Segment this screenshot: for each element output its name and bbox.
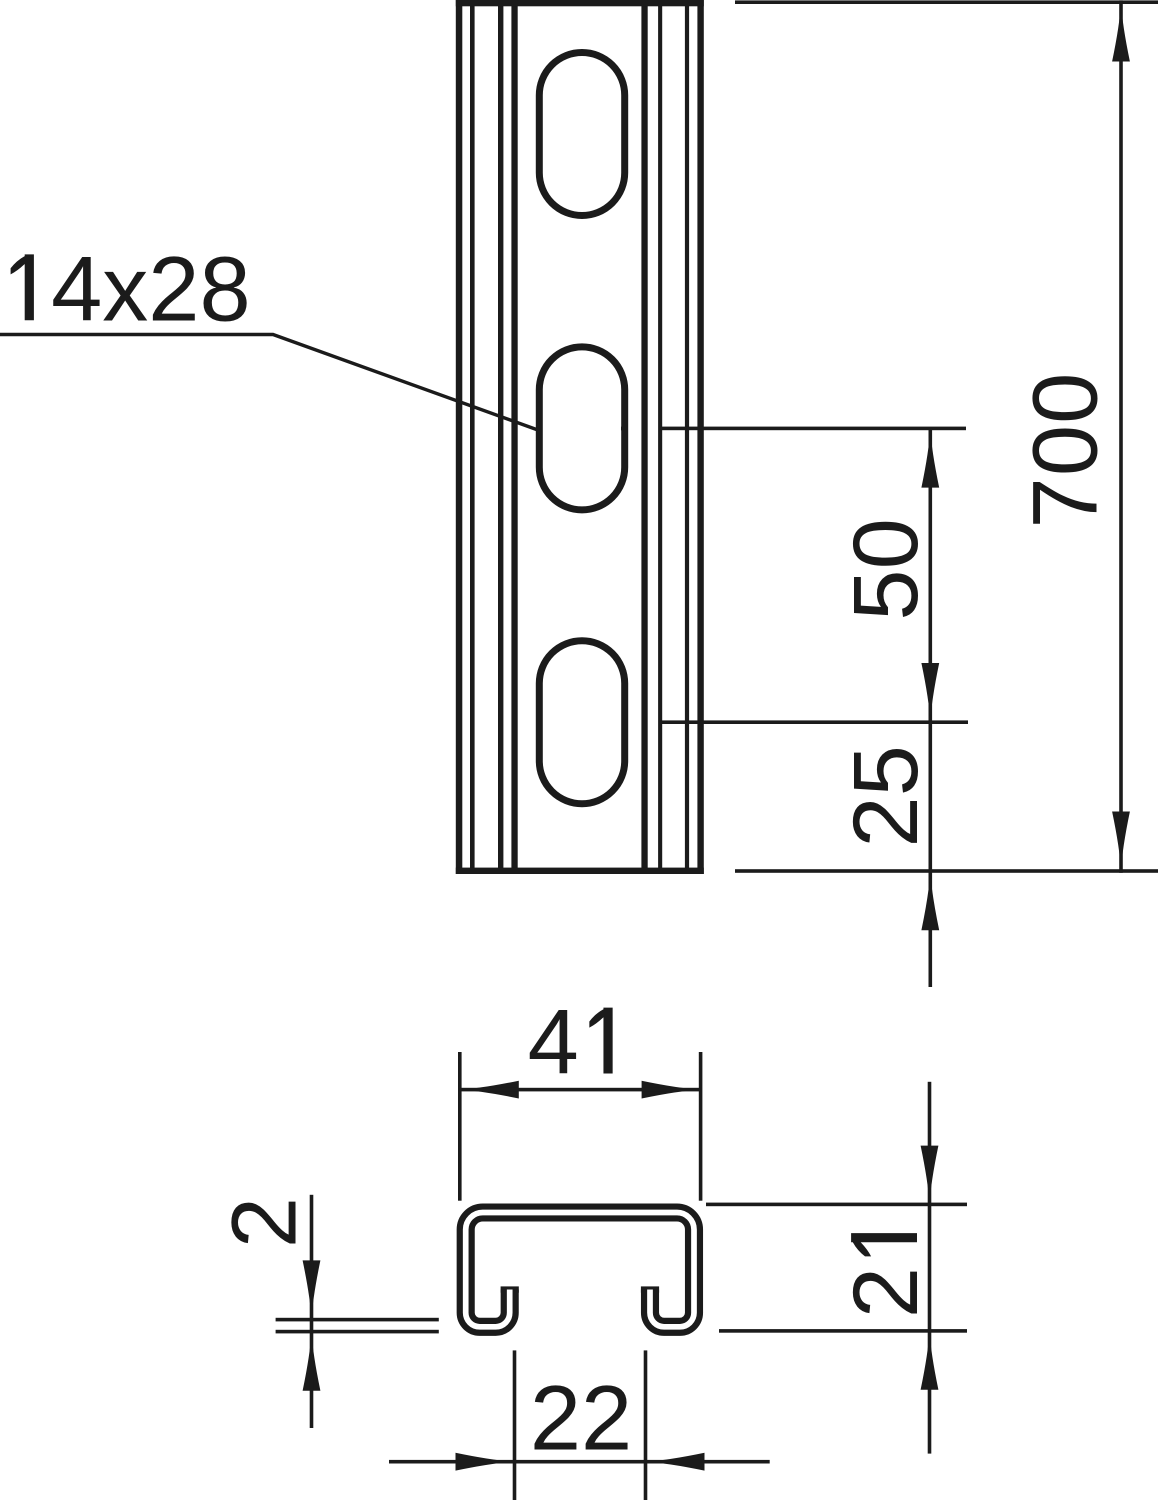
svg-text:2: 2: [213, 1197, 315, 1248]
svg-text:50: 50: [835, 518, 937, 620]
svg-text:22: 22: [530, 1368, 632, 1470]
svg-text:4: 4: [528, 992, 579, 1094]
svg-text:25: 25: [835, 745, 937, 847]
svg-text:4x28: 4x28: [51, 238, 251, 340]
svg-text:2: 2: [835, 1267, 937, 1318]
svg-text:700: 700: [1015, 371, 1117, 528]
